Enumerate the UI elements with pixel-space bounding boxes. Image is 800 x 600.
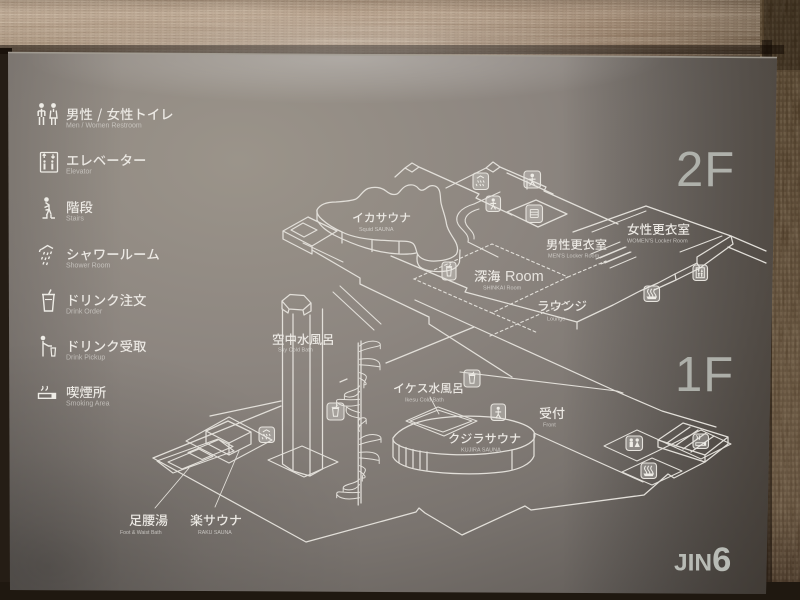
svg-text:Shower Room: Shower Room bbox=[66, 262, 111, 269]
svg-text:1F: 1F bbox=[675, 348, 734, 402]
svg-text:Squid SAUNA: Squid SAUNA bbox=[359, 227, 394, 233]
svg-text:Drink Order: Drink Order bbox=[66, 308, 103, 315]
svg-text:SHINKAI Room: SHINKAI Room bbox=[483, 286, 522, 292]
svg-text:RAKU SAUNA: RAKU SAUNA bbox=[198, 530, 232, 536]
svg-text:Lounge: Lounge bbox=[547, 317, 565, 323]
svg-text:Ikesu Cold Bath: Ikesu Cold Bath bbox=[405, 398, 444, 404]
svg-text:Room: Room bbox=[505, 269, 544, 285]
svg-text:MEN'S Locker Room: MEN'S Locker Room bbox=[548, 254, 600, 260]
svg-text:Elevator: Elevator bbox=[66, 168, 92, 175]
svg-text:Men / Women Restroom: Men / Women Restroom bbox=[66, 122, 142, 129]
svg-text:Drink Pickup: Drink Pickup bbox=[66, 354, 105, 361]
svg-text:2F: 2F bbox=[676, 143, 735, 197]
svg-text:Front: Front bbox=[543, 423, 556, 429]
svg-text:Smoking Area: Smoking Area bbox=[66, 400, 110, 407]
svg-text:Foot & Waist Bath: Foot & Waist Bath bbox=[120, 530, 162, 536]
svg-text:Sky Cold Bath: Sky Cold Bath bbox=[278, 348, 313, 354]
svg-text:WOMEN'S Locker Room: WOMEN'S Locker Room bbox=[627, 239, 688, 245]
svg-text:KUJIRA SAUNA: KUJIRA SAUNA bbox=[461, 448, 501, 454]
svg-text:Stairs: Stairs bbox=[66, 215, 84, 222]
